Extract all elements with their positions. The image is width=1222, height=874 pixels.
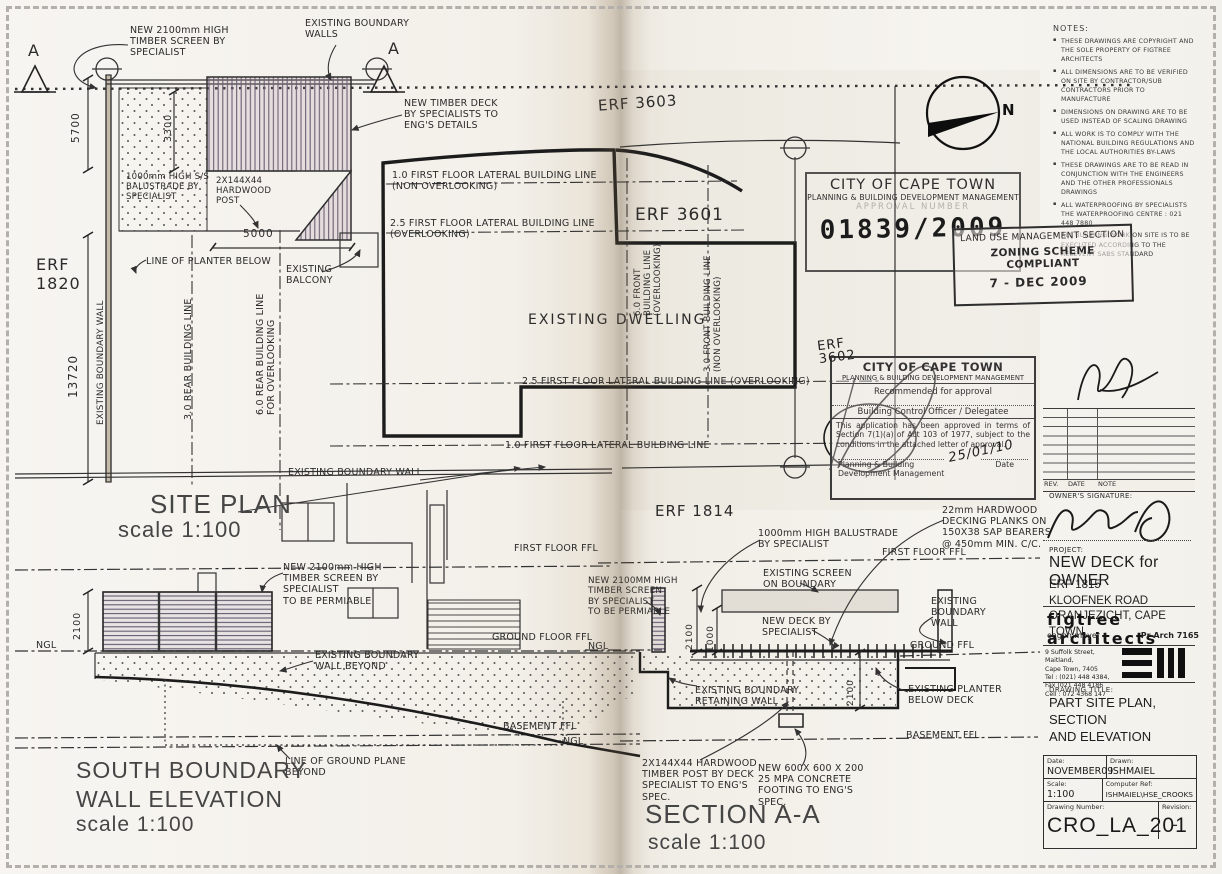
erf-1814-label: ERF 1814 <box>655 503 734 521</box>
elev-dim-2100: 2100 <box>72 612 83 640</box>
date-cell: Date: NOVEMBER09 <box>1044 756 1107 778</box>
sec-decking: 22mm HARDWOOD DECKING PLANKS ON 150X38 S… <box>942 505 1051 550</box>
sec-boundary-wall: EXISTING BOUNDARY WALL <box>931 596 986 630</box>
note-item: ALL WORK IS TO COMPLY WITH THE NATIONAL … <box>1053 130 1195 157</box>
computer-ref-cell: Computer Ref: ISHMAIEL\HSE_CROOKS <box>1103 779 1196 801</box>
drawn-label: Drawn: <box>1110 757 1193 765</box>
annotation-boundary-wall-left: EXISTING BOUNDARY WALL <box>96 300 106 425</box>
section-marker-a-left: A <box>28 42 40 61</box>
sec-dim-2100: 2100 <box>685 623 696 650</box>
approval-date-label: Date <box>981 459 1028 478</box>
drawn-cell: Drawn: ISHMAIEL <box>1107 756 1196 778</box>
erf-3602-label: ERF 3602 <box>817 336 857 366</box>
annotation-new-timber-deck: NEW TIMBER DECK BY SPECIALISTS TO ENG'S … <box>404 98 498 132</box>
annotation-existing-boundary-walls: EXISTING BOUNDARY WALLS <box>305 18 409 40</box>
annotation-rear-6-0: 6.0 REAR BUILDING LINE FOR OVERLOOKING <box>255 293 277 415</box>
section-scale: scale 1:100 <box>648 830 766 856</box>
revision-label: Revision: <box>1162 803 1193 811</box>
revision-table-header: REV. DATE NOTE <box>1043 479 1195 491</box>
rev-col-label: REV. <box>1043 480 1068 491</box>
sec-retaining-wall: EXISTING BOUNDARY RETAINING WALL <box>695 685 799 707</box>
logo-vertical-bars <box>1157 648 1185 678</box>
sec-new-deck: NEW DECK BY SPECIALIST <box>762 616 831 638</box>
scale-ref-row: Scale: 1:100 Computer Ref: ISHMAIEL\HSE_… <box>1044 779 1196 802</box>
note-item: DIMENSIONS ON DRAWING ARE TO BE USED INS… <box>1053 108 1195 126</box>
sec-ground-ffl: GROUND FFL <box>910 640 974 651</box>
revision-cell: Revision: - <box>1159 802 1196 839</box>
stamp-org: CITY OF CAPE TOWN <box>807 177 1019 193</box>
drawing-title-label: DRAWING TITLE: <box>1049 686 1201 694</box>
elev-boundary-beyond: EXISTING BOUNDARY WALL BEYOND <box>315 650 419 672</box>
approval-dept: PLANNING & BUILDING DEVELOPMENT MANAGEME… <box>832 374 1034 384</box>
date-value: NOVEMBER09 <box>1047 766 1103 777</box>
logo-horizontal-bars <box>1122 648 1152 678</box>
stamp-approval-label: APPROVAL NUMBER <box>807 202 1019 212</box>
sec-first-floor-ffl: FIRST FLOOR FFL <box>882 547 966 558</box>
sec-dim-1000: 1000 <box>706 625 717 652</box>
drawing-number-row: Drawing Number: CRO_LA_201 Revision: - <box>1044 802 1196 839</box>
revision-table: REV. DATE NOTE <box>1043 408 1195 492</box>
drawing-sheet: NEW 2100mm HIGH TIMBER SCREEN BY SPECIAL… <box>0 0 1222 874</box>
drawing-linework <box>0 0 1222 874</box>
elevation-lines <box>15 490 640 756</box>
sec-basement-ffl: BASEMENT FFL <box>906 730 980 741</box>
sec-dim-2100-b: 2100 <box>846 679 857 706</box>
annotation-front-6-0: 6.0 FRONT BUILDING LINE (OVERLOOKING) <box>633 244 663 316</box>
sec-planter: EXISTING PLANTER BELOW DECK <box>908 684 1002 706</box>
annotation-boundary-wall-bottom: EXISTING BOUNDARY WALL <box>288 467 422 478</box>
firm-row: eagon meyer Pr Arch 7165 <box>1047 631 1199 640</box>
annotation-lateral-1-0-top: 1.0 FIRST FLOOR LATERAL BUILDING LINE (N… <box>392 170 597 192</box>
firm-principal: eagon meyer <box>1047 631 1100 640</box>
figtree-logo-icon <box>1122 648 1190 678</box>
date-col-label: DATE <box>1068 480 1098 491</box>
elev-new-screen: NEW 2100mm HIGH TIMBER SCREEN BY SPECIAL… <box>283 562 382 607</box>
site-plan-scale: scale 1:100 <box>118 516 242 544</box>
divider <box>1043 606 1195 607</box>
elev-ngl-right: NGL <box>563 736 583 747</box>
zoning-stamp: LAND USE MANAGEMENT SECTION ZONING SCHEM… <box>952 224 1134 307</box>
scale-value: 1:100 <box>1047 789 1099 800</box>
dim-5000: 5000 <box>243 228 274 240</box>
drawing-number-label: Drawing Number: <box>1047 803 1155 811</box>
sec-ngl: NGL <box>588 641 608 652</box>
scale-label: Scale: <box>1047 780 1099 788</box>
sec-balustrade: 1000mm HIGH BALUSTRADE BY SPECIALIST <box>758 528 898 550</box>
firm-registration: Pr Arch 7165 <box>1141 631 1199 640</box>
zoning-section: LAND USE MANAGEMENT SECTION <box>954 230 1130 245</box>
erf-3601-label: ERF 3601 <box>635 205 724 225</box>
annotation-lateral-2-5-top: 2.5 FIRST FLOOR LATERAL BUILDING LINE (O… <box>390 218 595 240</box>
note-col-label: NOTE <box>1098 480 1116 491</box>
firm-name: figtree architects <box>1047 610 1199 648</box>
drawn-value: ISHMAIEL <box>1110 766 1193 777</box>
dim-3300: 3300 <box>163 114 174 142</box>
elev-ground-floor-ffl: GROUND FLOOR FFL <box>492 632 592 643</box>
approval-sign-dept: Planning & Building Development Manageme… <box>838 459 944 478</box>
signature-line <box>1043 540 1191 541</box>
elevation-scale: scale 1:100 <box>76 812 194 838</box>
sec-existing-screen: EXISTING SCREEN ON BOUNDARY <box>763 568 852 590</box>
approval-org: CITY OF CAPE TOWN <box>832 360 1034 374</box>
note-item: ALL DIMENSIONS ARE TO BE VERIFIED ON SIT… <box>1053 68 1195 105</box>
sec-new-screen: NEW 2100MM HIGH TIMBER SCREEN BY SPECIAL… <box>588 576 678 618</box>
computer-ref-label: Computer Ref: <box>1106 780 1193 788</box>
approval-recommended: Recommended for approval <box>832 384 1034 406</box>
elev-first-floor-ffl: FIRST FLOOR FFL <box>514 543 598 554</box>
north-arrow-icon <box>927 77 999 149</box>
zoning-date: 7 - DEC 2009 <box>955 273 1131 292</box>
annotation-front-3-0: 3.0 FRONT BUILDING LINE (NON OVERLOOKING… <box>703 255 723 372</box>
drawing-title: PART SITE PLAN, SECTION AND ELEVATION <box>1049 695 1201 746</box>
annotation-rear-3-0: 3.0 REAR BUILDING LINE <box>183 298 194 420</box>
revision-value: - <box>1162 815 1193 834</box>
elevation-title: SOUTH BOUNDARY WALL ELEVATION <box>76 756 307 814</box>
section-title: SECTION A-A <box>645 798 821 831</box>
zoning-status: ZONING SCHEME COMPLIANT <box>955 244 1132 273</box>
annotation-balustrade: 1000mm HIGH S/S BALUSTRADE BY SPECIALIST <box>126 172 209 202</box>
annotation-line-planter: LINE OF PLANTER BELOW <box>146 256 271 267</box>
drawing-number-value: CRO_LA_201 <box>1047 814 1155 838</box>
approval-officer: Building Control Officer / Delegatee <box>832 406 1034 419</box>
annotation-hardwood-post: 2X144X44 HARDWOOD POST <box>216 176 271 206</box>
stamp-dept: PLANNING & BUILDING DEVELOPMENT MANAGEME… <box>807 193 1019 202</box>
note-item: THESE DRAWINGS ARE TO BE READ IN CONJUNC… <box>1053 161 1195 198</box>
annotation-lateral-2-5-bottom: 2.5 FIRST FLOOR LATERAL BUILDING LINE (O… <box>522 376 810 387</box>
approval-stamp: CITY OF CAPE TOWN PLANNING & BUILDING DE… <box>830 356 1036 500</box>
divider <box>1043 682 1195 683</box>
existing-dwelling-label: EXISTING DWELLING <box>528 312 706 329</box>
divider <box>1043 645 1195 646</box>
elev-basement-ffl: BASEMENT FFL <box>503 721 577 732</box>
computer-ref-value: ISHMAIEL\HSE_CROOKS <box>1106 790 1193 799</box>
north-label: N <box>1002 102 1015 120</box>
date-drawn-row: Date: NOVEMBER09 Drawn: ISHMAIEL <box>1044 756 1196 779</box>
elev-ngl-left: NGL <box>36 640 56 651</box>
section-marker-a-right: A <box>388 40 400 59</box>
dim-5700: 5700 <box>70 112 82 143</box>
drawing-number-cell: Drawing Number: CRO_LA_201 <box>1044 802 1159 839</box>
note-item: THESE DRAWINGS ARE COPYRIGHT AND THE SOL… <box>1053 37 1195 64</box>
annotation-new-screen: NEW 2100mm HIGH TIMBER SCREEN BY SPECIAL… <box>130 25 229 59</box>
notes-title: NOTES: <box>1053 24 1195 33</box>
title-block-table: Date: NOVEMBER09 Drawn: ISHMAIEL Scale: … <box>1043 755 1197 849</box>
annotation-existing-balcony: EXISTING BALCONY <box>286 264 333 286</box>
approval-footer: Planning & Building Development Manageme… <box>832 451 1034 478</box>
date-label: Date: <box>1047 757 1103 765</box>
scale-cell: Scale: 1:100 <box>1044 779 1103 801</box>
erf-1820-label: ERF 1820 <box>36 256 81 294</box>
project-label: PROJECT: <box>1049 546 1201 554</box>
annotation-lateral-1-0-bottom: 1.0 FIRST FLOOR LATERAL BUILDING LINE <box>505 440 710 451</box>
sec-timber-post: 2X144X44 HARDWOOD TIMBER POST BY DECK SP… <box>642 758 757 803</box>
dim-13720: 13720 <box>66 355 80 398</box>
owners-signature-label: OWNER'S SIGNATURE: <box>1049 492 1201 500</box>
